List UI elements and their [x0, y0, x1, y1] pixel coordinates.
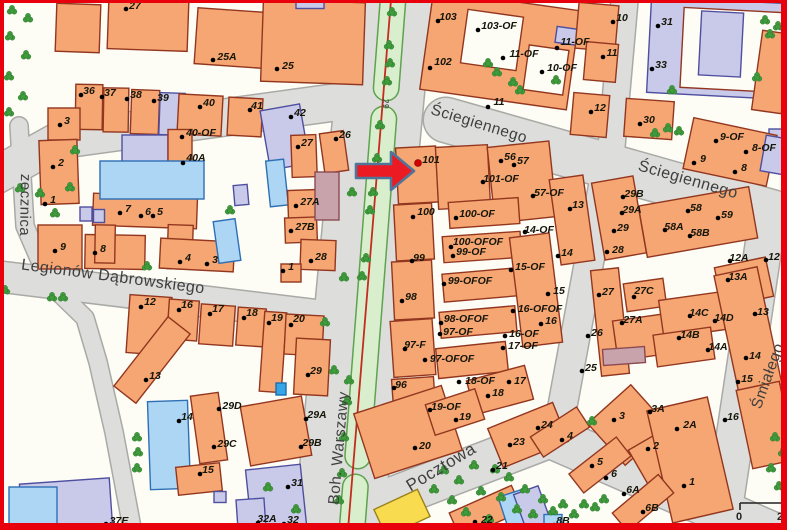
building-label: 5	[157, 206, 163, 218]
building-label: 4	[566, 430, 573, 442]
building-label: 5	[597, 456, 603, 468]
building-label: 1	[50, 194, 56, 206]
building-label: 29	[309, 365, 322, 377]
building-label: 15-OF	[515, 261, 545, 273]
building-label: 39	[157, 92, 169, 104]
building	[55, 3, 101, 53]
address-dot	[692, 161, 697, 166]
address-dot	[205, 262, 210, 267]
building-label: 2	[57, 157, 64, 169]
building	[602, 347, 645, 366]
address-dot	[511, 309, 516, 314]
building-label: 10-OF	[547, 62, 577, 74]
address-dot	[638, 122, 643, 127]
address-dot	[211, 58, 216, 63]
address-dot	[181, 161, 186, 166]
building-label: 13	[572, 199, 584, 211]
building-label: 23	[512, 436, 525, 448]
building-label: 28	[611, 244, 624, 256]
building-label: 17-OF	[508, 340, 538, 352]
address-dot	[275, 67, 280, 72]
building-label: 14	[749, 350, 761, 362]
building-label: 31	[291, 477, 303, 489]
address-dot	[501, 346, 506, 351]
address-dot	[151, 214, 156, 219]
street-name-label: 29	[381, 99, 391, 109]
building-label: 14B	[680, 329, 700, 341]
building-label: 15	[202, 464, 214, 476]
building-label: 56	[504, 151, 516, 163]
address-dot	[714, 139, 719, 144]
building-label: 2	[652, 440, 659, 452]
address-dot	[656, 24, 661, 29]
building-label: 97-F	[404, 339, 426, 351]
address-dot	[286, 485, 291, 490]
building-label: 6	[145, 206, 151, 218]
address-dot	[675, 427, 680, 432]
address-dot	[442, 282, 447, 287]
building-label: 6A	[626, 484, 639, 496]
address-dot	[733, 170, 738, 175]
address-dot	[586, 334, 591, 339]
building-label: 11-OF	[561, 36, 591, 48]
address-dot	[198, 105, 203, 110]
building	[214, 492, 226, 503]
address-dot	[139, 305, 144, 310]
building-label: 3	[619, 410, 625, 422]
address-dot	[411, 215, 416, 220]
map-frame	[781, 0, 787, 530]
building-label: 15	[553, 285, 565, 297]
building	[233, 184, 249, 205]
building-label: 19-OF	[431, 401, 461, 413]
address-dot	[556, 254, 561, 259]
address-dot	[503, 334, 508, 339]
building-label: 36	[83, 85, 95, 97]
address-dot	[612, 418, 617, 423]
building-label: 27	[601, 286, 615, 298]
map-frame	[0, 0, 787, 3]
building-label: 29B	[301, 437, 322, 449]
address-dot	[597, 293, 602, 298]
building	[698, 11, 743, 77]
building-label: 26	[338, 129, 351, 141]
address-dot	[716, 216, 721, 221]
building	[266, 159, 289, 207]
building-label: 29B	[623, 188, 644, 200]
address-dot	[546, 292, 551, 297]
building	[570, 93, 610, 138]
address-dot	[413, 446, 418, 451]
address-dot	[53, 249, 58, 254]
building-label: 9	[700, 153, 706, 165]
address-dot	[451, 254, 456, 259]
building-label: 98	[405, 291, 417, 303]
building-label: 57	[517, 155, 530, 167]
building-label: 27A	[622, 314, 642, 326]
building-label: 99	[413, 252, 425, 264]
building-label: 29C	[216, 438, 237, 450]
building-label: 37	[104, 87, 117, 99]
building-label: 42	[293, 107, 306, 119]
building-label: 16	[545, 315, 557, 327]
building-label: 26	[590, 327, 603, 339]
building-label: 29A	[621, 204, 641, 216]
address-dot	[555, 46, 560, 51]
address-dot	[438, 332, 443, 337]
building-label: 3A	[651, 403, 664, 415]
building-label: 13	[757, 306, 769, 318]
address-dot	[217, 407, 222, 412]
building-label: 99-OF	[456, 246, 486, 258]
building-label: 29	[616, 222, 629, 234]
address-dot	[486, 105, 491, 110]
building-label: 58B	[690, 227, 710, 239]
building-label: 27B	[294, 221, 315, 233]
address-dot	[124, 7, 129, 12]
building-label: 58	[690, 202, 702, 214]
building-label: 14	[181, 411, 193, 423]
address-dot	[646, 447, 651, 452]
building-label: 3	[64, 115, 70, 127]
building-label: 27A	[299, 196, 319, 208]
address-dot	[58, 123, 63, 128]
building-label: 27	[300, 137, 314, 149]
building-label: 12	[144, 296, 156, 308]
address-dot	[604, 476, 609, 481]
building-label: 18	[246, 307, 258, 319]
building-label: 17	[212, 303, 225, 315]
building-label: 18-OF	[465, 375, 495, 387]
address-dot	[744, 356, 749, 361]
address-dot	[400, 299, 405, 304]
address-dot	[289, 229, 294, 234]
address-dot	[611, 20, 616, 25]
building-label: 6	[611, 468, 617, 480]
building	[80, 207, 92, 221]
address-dot	[454, 418, 459, 423]
map-canvas[interactable]: 2725A253637383940414232140-OF40A76598432…	[0, 0, 787, 530]
building-label: 25	[584, 362, 597, 374]
building-label: 19	[459, 411, 471, 423]
building-label: 16-OF	[509, 328, 539, 340]
scale-bar-label: 0	[736, 511, 742, 523]
building-label: 28	[314, 251, 327, 263]
address-dot	[118, 211, 123, 216]
building	[176, 463, 223, 495]
building-label: 9	[60, 241, 66, 253]
address-dot	[457, 380, 462, 385]
address-dot	[476, 28, 481, 33]
building-label: 13A	[728, 271, 747, 283]
building	[100, 161, 204, 199]
building-label: 25	[281, 60, 294, 72]
building-label: 3	[212, 254, 218, 266]
building-label: 16	[181, 299, 193, 311]
address-dot	[539, 322, 544, 327]
building-label: 20	[418, 440, 431, 452]
building-label: 96	[395, 379, 407, 391]
building-label: 33	[655, 59, 667, 71]
building-label: 40-OF	[185, 127, 216, 139]
address-dot	[281, 269, 286, 274]
building-label: 101	[422, 154, 440, 166]
address-dot	[428, 66, 433, 71]
building-label: 8	[741, 162, 747, 174]
building-label: 100-OF	[459, 208, 495, 220]
address-dot	[736, 380, 741, 385]
building-label: 12A	[729, 252, 748, 264]
building-label: 14C	[689, 307, 709, 319]
address-dot	[289, 115, 294, 120]
street-name-label: zecznica	[16, 174, 34, 237]
building-label: 11-OF	[510, 48, 540, 60]
address-dot	[139, 214, 144, 219]
building	[261, 0, 366, 85]
building	[94, 210, 105, 223]
address-dot	[580, 369, 585, 374]
building-label: 38	[130, 89, 142, 101]
address-dot	[540, 70, 545, 75]
building-label: 8	[100, 243, 106, 255]
address-dot	[152, 99, 157, 104]
building	[107, 0, 189, 51]
building-label: 18	[492, 387, 504, 399]
address-dot	[439, 321, 444, 326]
address-dot	[180, 135, 185, 140]
building-label: 97-OFOF	[430, 353, 475, 365]
building-label: 12	[768, 251, 780, 263]
building-label: 12	[594, 102, 606, 114]
building-label: 27C	[633, 285, 654, 297]
building-label: 14A	[708, 341, 727, 353]
building-label: 1	[288, 261, 294, 273]
address-dot	[334, 137, 339, 142]
address-dot	[501, 56, 506, 61]
address-dot	[508, 443, 513, 448]
address-dot	[51, 165, 56, 170]
building-label: 16	[727, 411, 739, 423]
building-label: 24	[540, 419, 553, 431]
target-red-dot	[415, 160, 422, 167]
address-dot	[309, 259, 314, 264]
building-label: 14	[561, 247, 573, 259]
building	[9, 487, 57, 529]
building-label: 11	[607, 47, 618, 59]
building-label: 103	[439, 11, 457, 23]
building-label: 103-OF	[481, 20, 517, 32]
building-label: 58A	[664, 221, 683, 233]
building-label: 102	[434, 56, 452, 68]
building-label: 41	[250, 100, 263, 112]
building-label: 40A	[185, 152, 205, 164]
address-dot	[590, 464, 595, 469]
building-label: 25A	[216, 51, 236, 63]
address-dot	[93, 251, 98, 256]
address-dot	[178, 260, 183, 265]
address-dot	[294, 204, 299, 209]
map-viewport: 2725A253637383940414232140-OF40A76598432…	[0, 0, 787, 530]
building-label: 10	[616, 12, 628, 24]
building-label: 57-OF	[534, 187, 564, 199]
address-dot	[512, 163, 517, 168]
building-label: 11	[494, 96, 505, 108]
building	[240, 396, 311, 466]
building	[276, 383, 286, 395]
building-label: 20	[292, 313, 305, 325]
address-dot	[605, 250, 610, 255]
building-label: 99-OFOF	[448, 275, 493, 287]
building-label: 15	[741, 373, 753, 385]
address-dot	[144, 378, 149, 383]
building-label: 40	[202, 97, 215, 109]
building-label: 6B	[645, 502, 659, 514]
building-label: 101-OF	[483, 173, 519, 185]
address-dot	[43, 202, 48, 207]
address-dot	[507, 380, 512, 385]
address-dot	[491, 468, 496, 473]
building-label: 17	[514, 375, 527, 387]
building-label: 8-OF	[752, 142, 777, 154]
address-dot	[212, 445, 217, 450]
address-dot	[454, 216, 459, 221]
address-dot	[744, 150, 749, 155]
building-label: 9-OF	[720, 131, 745, 143]
building-label: 16-OFOF	[518, 303, 563, 315]
building-label: 100	[417, 206, 435, 218]
building-label: 21	[495, 460, 508, 472]
building-label: 14-OF	[524, 224, 554, 236]
median-green-strip	[352, 487, 355, 527]
address-dot	[296, 145, 301, 150]
building-label: 29A	[306, 409, 326, 421]
building-label: 30	[643, 114, 655, 126]
building-label: 14D	[714, 312, 734, 324]
address-dot	[423, 358, 428, 363]
address-dot	[682, 484, 687, 489]
address-dot	[601, 55, 606, 60]
building-label: 19	[271, 312, 283, 324]
building	[461, 9, 524, 70]
address-dot	[589, 110, 594, 115]
building-label: 29D	[221, 400, 242, 412]
building-label: 31	[661, 16, 673, 28]
address-dot	[499, 159, 504, 164]
address-dot	[486, 394, 491, 399]
building	[392, 260, 435, 320]
map-frame	[0, 523, 787, 530]
building-label: 97-OF	[443, 326, 473, 338]
address-dot	[560, 438, 565, 443]
building-label: 4	[184, 252, 191, 264]
address-dot	[650, 67, 655, 72]
address-dot	[612, 229, 617, 234]
map-frame	[0, 0, 4, 530]
building-label: 59	[721, 209, 733, 221]
address-dot	[509, 268, 514, 273]
building-label: 2A	[682, 419, 696, 431]
building-label: 98-OFOF	[444, 313, 489, 325]
address-dot	[536, 426, 541, 431]
address-dot	[125, 97, 130, 102]
building-label: 13	[149, 370, 161, 382]
building-label: 1	[689, 476, 695, 488]
